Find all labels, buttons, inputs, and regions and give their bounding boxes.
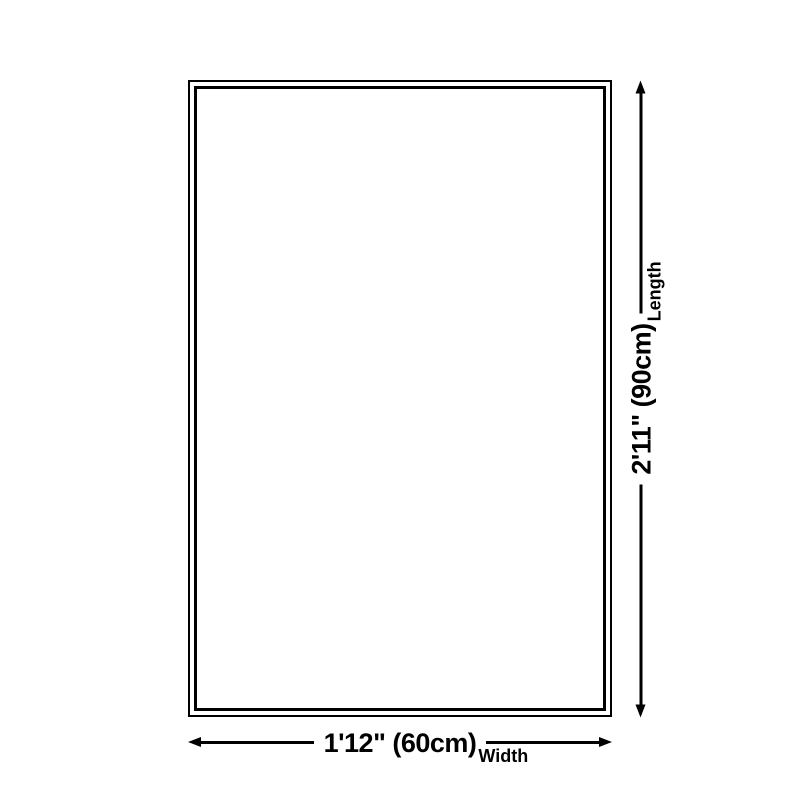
length-dimension-line-bottom <box>639 485 642 705</box>
dimension-diagram: 1'12" (60cm) Width 2'11" (90cm) Length <box>0 0 800 800</box>
length-dimension-line-top: Length <box>639 93 642 313</box>
width-dimension-line-left <box>201 741 314 744</box>
width-dimension-value: 1'12" (60cm) <box>324 730 477 757</box>
length-dimension-value: 2'11" (90cm) <box>628 323 655 474</box>
width-dimension-label: Width <box>478 747 528 765</box>
arrow-up-icon <box>636 80 646 93</box>
product-outline <box>188 80 612 717</box>
arrow-down-icon <box>636 705 646 718</box>
arrow-left-icon <box>188 737 201 747</box>
product-outline-inner-border <box>194 86 606 711</box>
length-dimension-label: Length <box>645 261 663 321</box>
arrow-right-icon <box>599 737 612 747</box>
length-dimension: 2'11" (90cm) Length <box>623 81 659 718</box>
width-dimension: 1'12" (60cm) Width <box>188 724 612 760</box>
width-dimension-line-right: Width <box>486 741 599 744</box>
